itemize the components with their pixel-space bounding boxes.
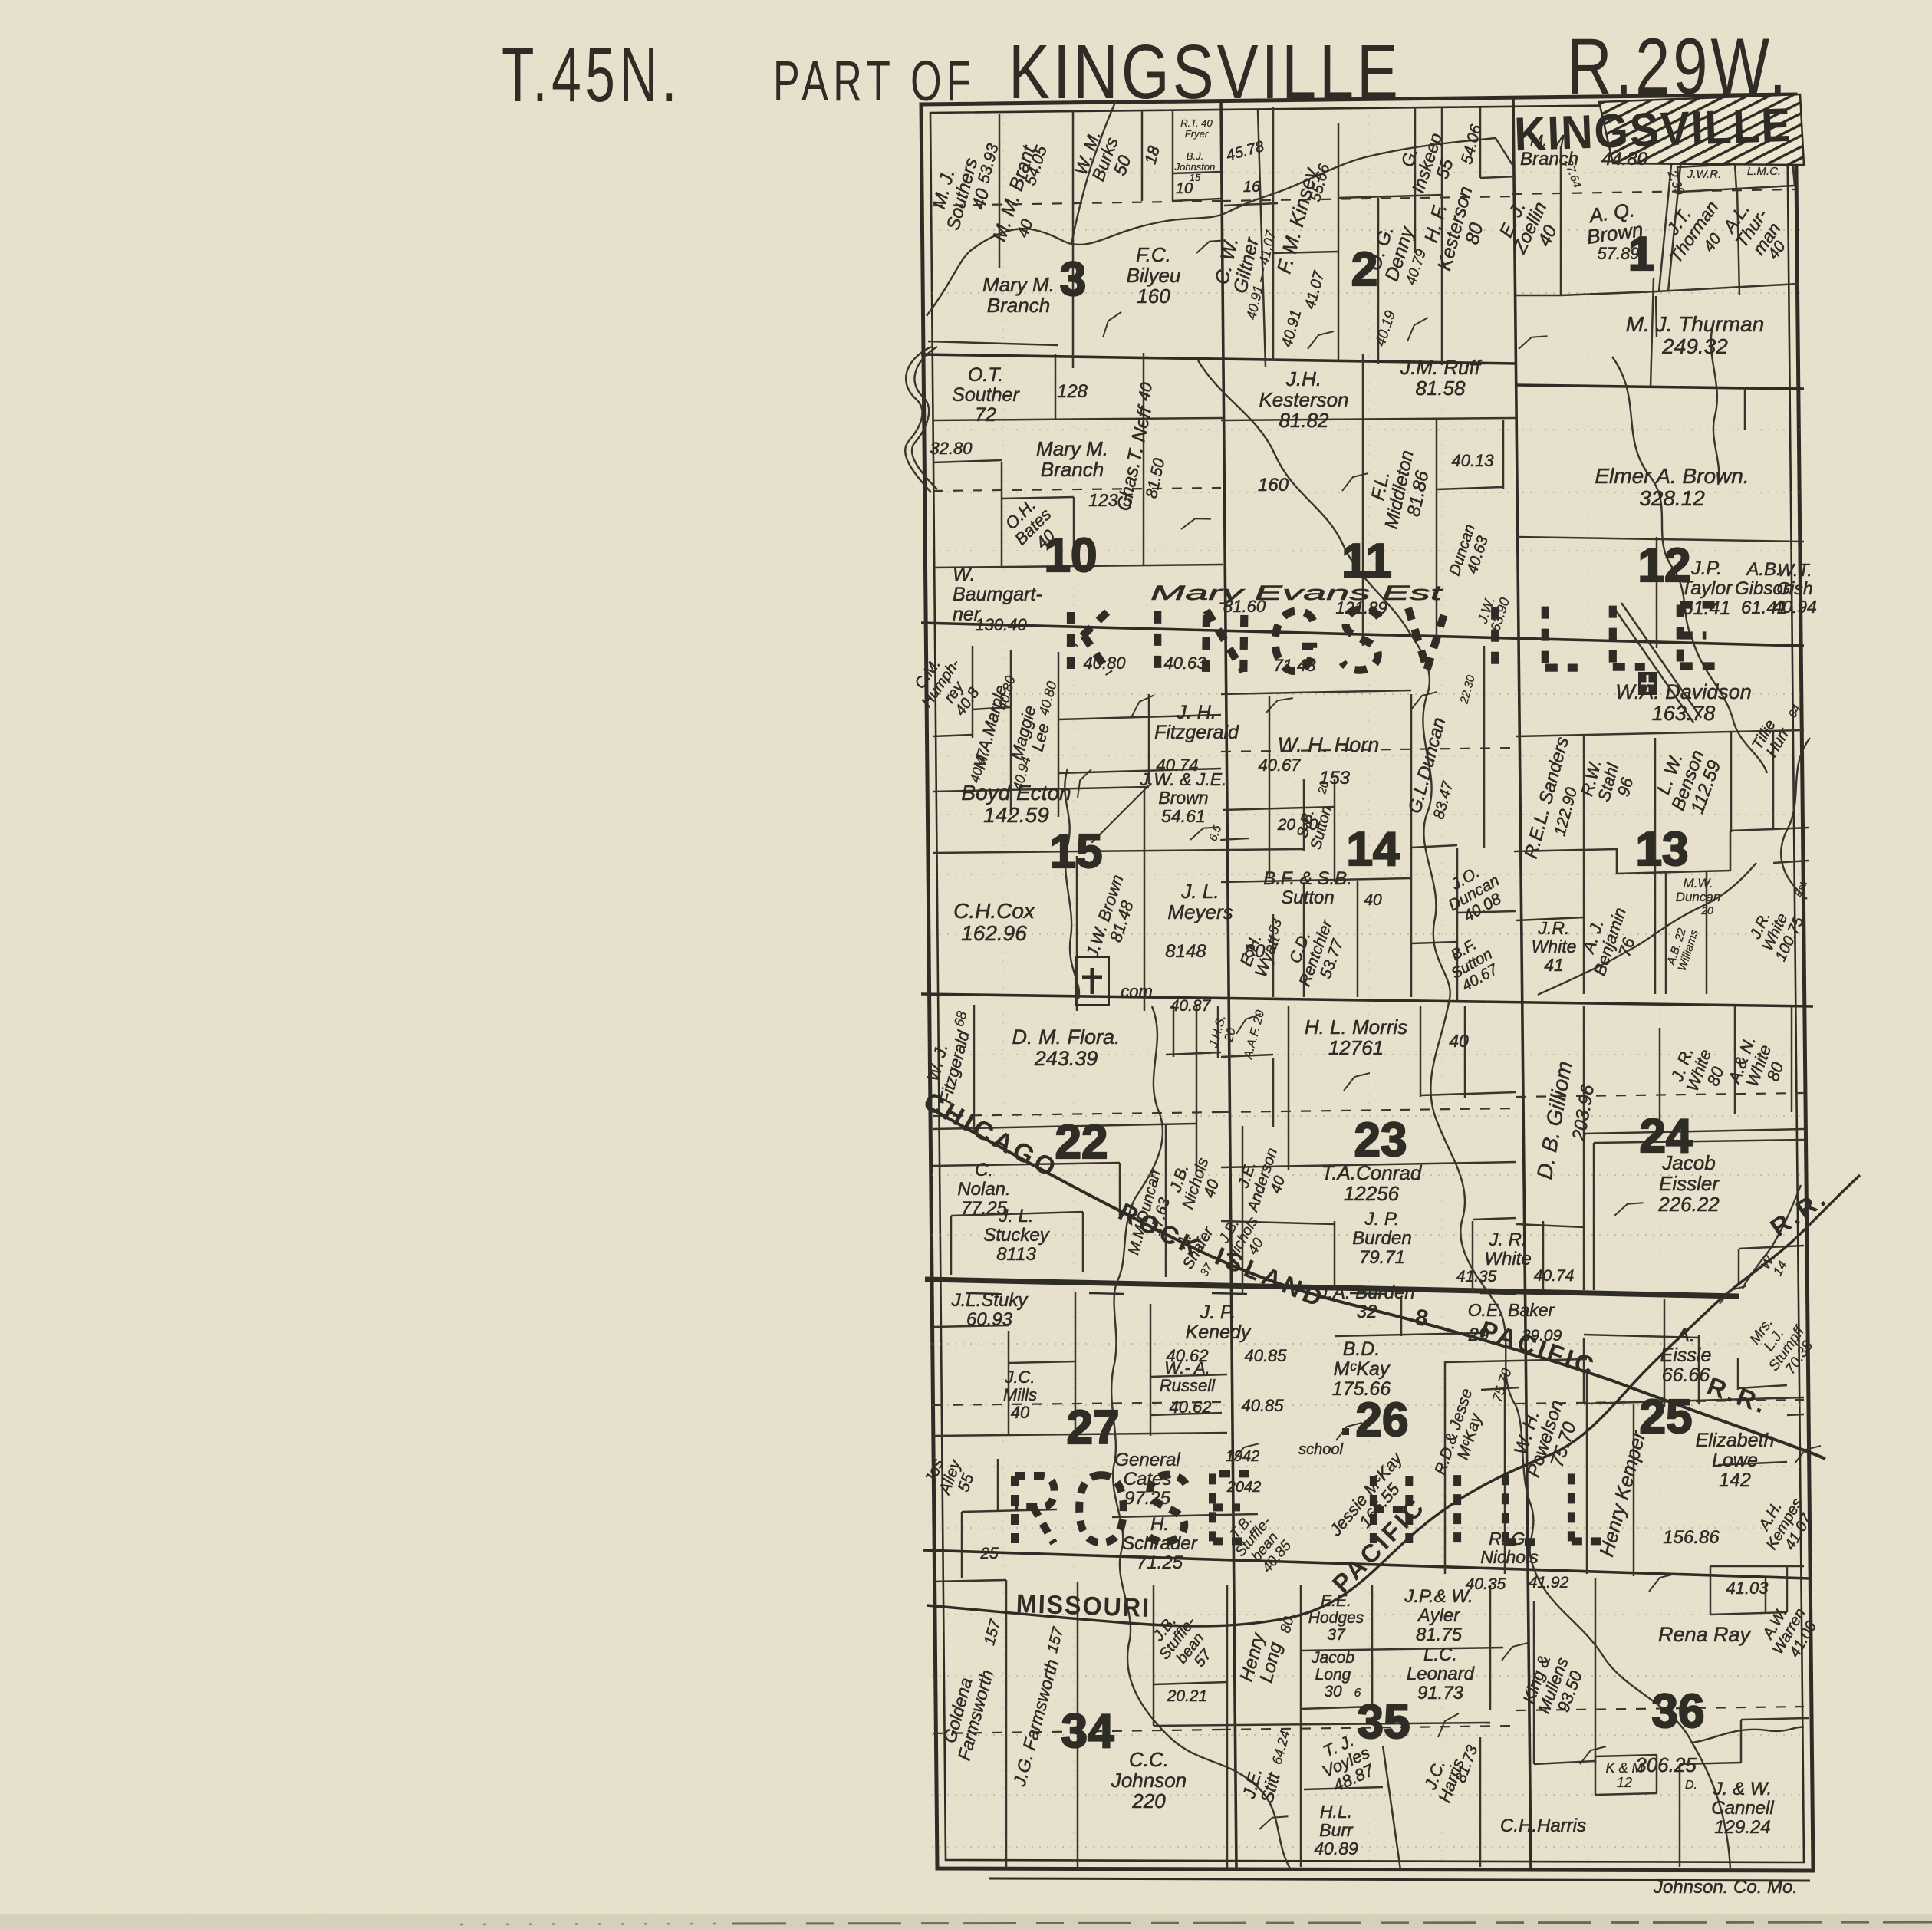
svg-text:35: 35 [1358, 1696, 1410, 1749]
svg-text:20: 20 [1700, 904, 1713, 917]
svg-text:8148: 8148 [1165, 941, 1206, 962]
svg-text:40.67: 40.67 [1258, 755, 1301, 775]
svg-text:27: 27 [1067, 1401, 1120, 1454]
svg-text:3: 3 [1060, 253, 1086, 306]
svg-text:32.80: 32.80 [930, 439, 973, 458]
svg-text:14: 14 [1347, 823, 1400, 876]
svg-text:25: 25 [979, 1545, 999, 1562]
svg-text:10: 10 [1176, 180, 1193, 197]
svg-text:40.13: 40.13 [1451, 451, 1494, 470]
svg-text:R.T. 40Fryer: R.T. 40Fryer [1180, 117, 1213, 140]
svg-text:15: 15 [1050, 825, 1103, 878]
svg-text:D.: D. [1685, 1779, 1697, 1792]
svg-text:39.09: 39.09 [1522, 1327, 1562, 1345]
svg-text:34: 34 [1061, 1705, 1114, 1758]
svg-text:40.87: 40.87 [1170, 997, 1212, 1015]
svg-text:W. H. Horn: W. H. Horn [1278, 733, 1380, 756]
svg-text:44.80: 44.80 [1601, 149, 1648, 170]
svg-text:M. M.: M. M. [1530, 133, 1568, 150]
svg-text:23: 23 [1354, 1114, 1407, 1167]
svg-text:W.T.Gish40.94: W.T.Gish40.94 [1772, 560, 1817, 617]
svg-text:40: 40 [1449, 1031, 1469, 1051]
svg-text:Mary M.Branch: Mary M.Branch [1036, 437, 1108, 481]
svg-text:school: school [1298, 1441, 1343, 1458]
svg-text:Rena Ray: Rena Ray [1658, 1623, 1752, 1646]
svg-text:306.25: 306.25 [1635, 1753, 1697, 1776]
svg-text:J.W.R.: J.W.R. [1687, 168, 1721, 181]
svg-text:com: com [1121, 982, 1153, 1001]
svg-text:40.63: 40.63 [1163, 653, 1206, 673]
svg-text:22: 22 [1055, 1116, 1108, 1169]
svg-text:36: 36 [1652, 1685, 1705, 1738]
svg-text:C.H.Harris: C.H.Harris [1500, 1815, 1586, 1836]
svg-text:130.40: 130.40 [975, 615, 1027, 634]
svg-text:Mary M.Branch: Mary M.Branch [982, 273, 1055, 317]
svg-text:57.89: 57.89 [1597, 244, 1639, 263]
svg-text:6: 6 [1354, 1687, 1361, 1700]
svg-text:160: 160 [1258, 475, 1289, 495]
svg-text:R. G.Nichols: R. G.Nichols [1480, 1529, 1539, 1567]
svg-text:40.85: 40.85 [1241, 1396, 1284, 1415]
svg-text:Mary Evans Est: Mary Evans Est [1150, 581, 1444, 604]
svg-text:40: 40 [1364, 891, 1382, 909]
svg-text:156.86: 156.86 [1663, 1527, 1720, 1548]
svg-text:11: 11 [1341, 535, 1392, 588]
svg-text:128: 128 [1057, 381, 1088, 402]
svg-text:26: 26 [1356, 1394, 1409, 1447]
svg-text:81.60: 81.60 [1223, 597, 1266, 616]
svg-text:29: 29 [1468, 1325, 1489, 1345]
svg-text:JacobEissler226.22: JacobEissler226.22 [1657, 1151, 1720, 1216]
svg-text:MISSOURI: MISSOURI [1015, 1589, 1150, 1623]
svg-text:O.E. Baker: O.E. Baker [1468, 1300, 1555, 1320]
svg-text:71.48: 71.48 [1273, 656, 1316, 675]
svg-text:40.74: 40.74 [1534, 1267, 1575, 1285]
svg-text:H.L.Burr40.89: H.L.Burr40.89 [1314, 1802, 1358, 1858]
svg-text:1942: 1942 [1226, 1448, 1260, 1465]
svg-text:13: 13 [1636, 823, 1689, 876]
svg-text:16: 16 [1243, 179, 1261, 196]
svg-text:40.62: 40.62 [1169, 1397, 1211, 1417]
svg-text:41.03: 41.03 [1726, 1578, 1769, 1598]
svg-text:Johnson. Co. Mo.: Johnson. Co. Mo. [1653, 1877, 1798, 1898]
svg-text:T.45N.: T.45N. [502, 32, 681, 118]
svg-text:J. R.White: J. R.White [1484, 1229, 1531, 1269]
svg-text:20.21: 20.21 [1167, 1687, 1208, 1705]
svg-text:41.92: 41.92 [1529, 1574, 1569, 1592]
svg-text:J. & W.Cannell129.24: J. & W.Cannell129.24 [1711, 1779, 1774, 1838]
svg-text:2042: 2042 [1226, 1479, 1262, 1496]
svg-text:40.85: 40.85 [1244, 1346, 1287, 1365]
svg-text:L.M.C.: L.M.C. [1747, 165, 1781, 178]
svg-text:121.89: 121.89 [1335, 598, 1387, 617]
svg-text:C.H.Cox162.96: C.H.Cox162.96 [953, 899, 1035, 945]
svg-text:W.- A.Russell: W.- A.Russell [1160, 1358, 1216, 1395]
svg-text:41.35: 41.35 [1456, 1268, 1497, 1285]
svg-text:40.80: 40.80 [1083, 653, 1126, 673]
